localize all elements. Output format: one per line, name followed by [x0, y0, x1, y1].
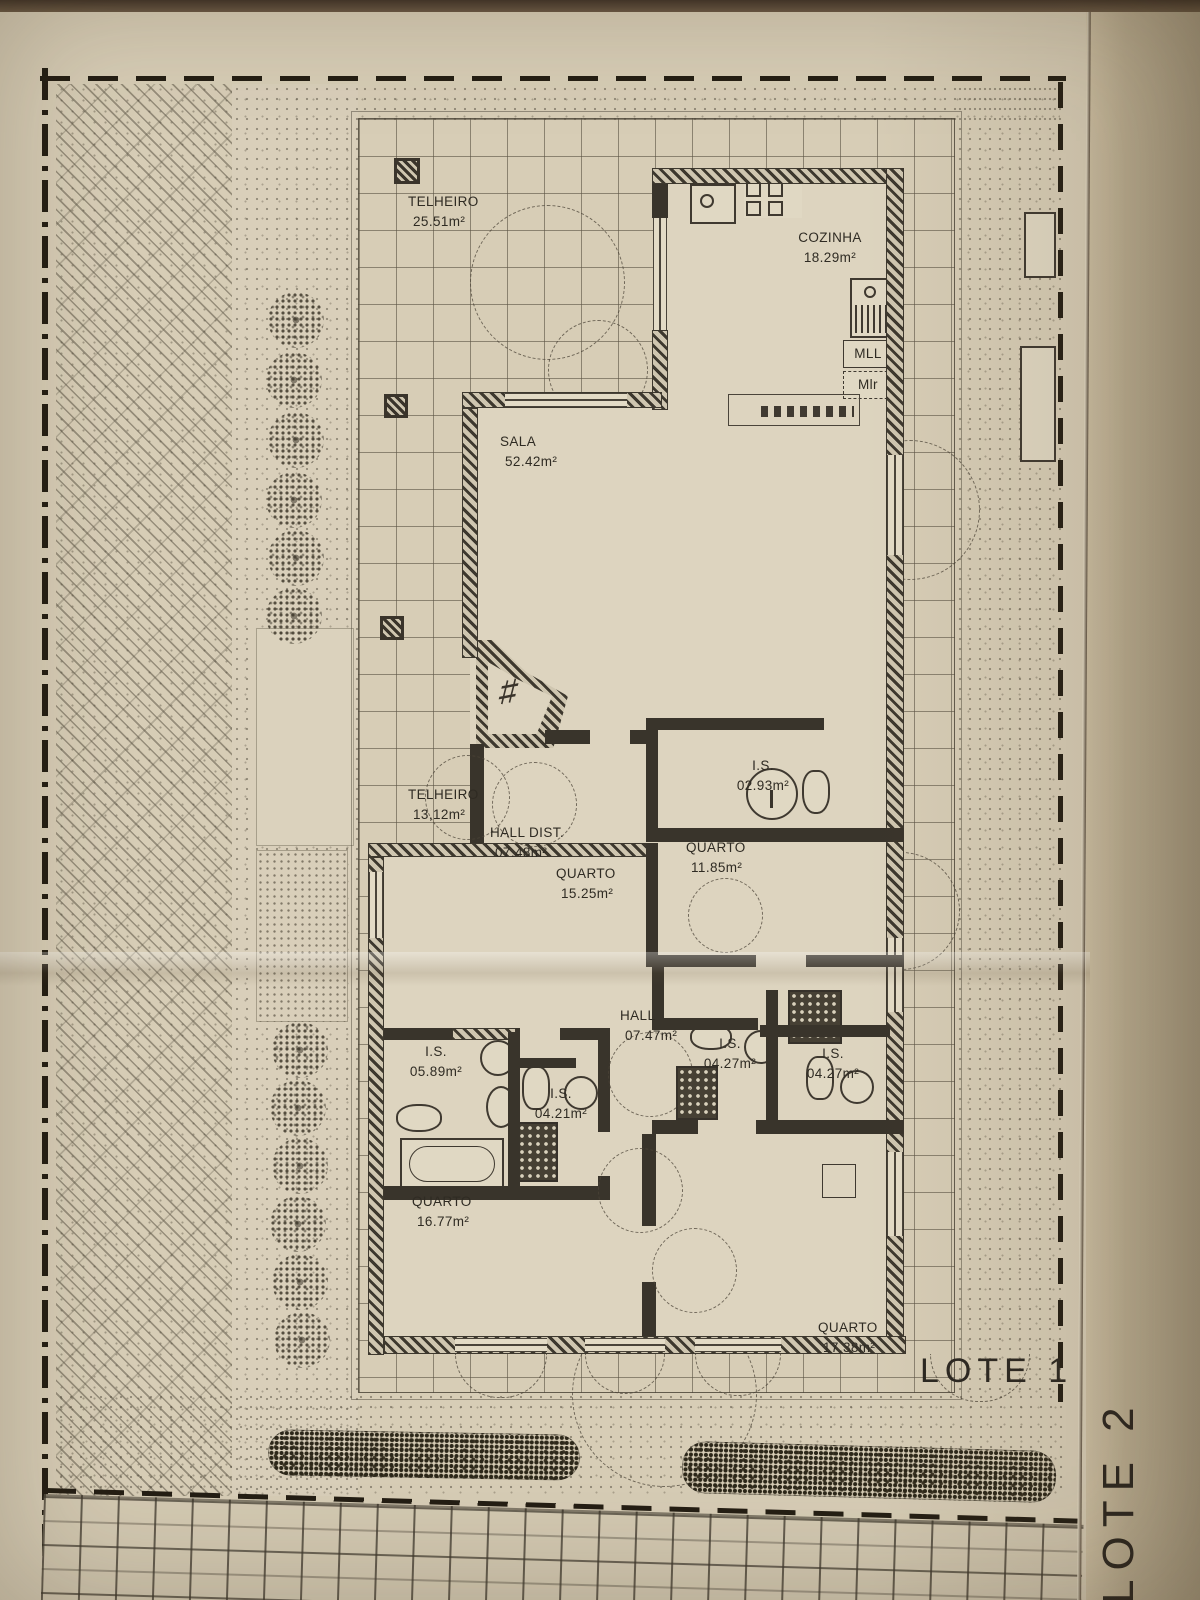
room-area: 15.25m²	[556, 884, 616, 904]
room-label-telheiro-2: TELHEIRO 13,12m²	[408, 785, 479, 826]
room-name: HALL DIST.	[490, 823, 564, 843]
room-name: I.S.	[698, 1034, 762, 1054]
room-name: I.S.	[404, 1042, 468, 1062]
kitchen-sink-icon	[700, 194, 714, 208]
hedge-icon	[268, 1429, 581, 1480]
property-boundary-right	[1058, 82, 1063, 1402]
room-label-is-0293: I.S. 02.93m²	[728, 756, 798, 797]
column-post-icon	[394, 158, 420, 184]
planter-icon	[1024, 212, 1056, 278]
wall-segment	[652, 184, 668, 218]
room-area: 18.29m²	[788, 248, 872, 268]
tree-icon	[268, 412, 324, 468]
stove-burner	[768, 201, 783, 216]
room-area: 07.48m²	[490, 843, 564, 863]
lot-label-lote1: LOTE 1	[920, 1352, 1073, 1391]
room-label-cozinha: COZINHA 18.29m²	[788, 228, 872, 269]
room-name: QUARTO	[412, 1192, 472, 1212]
tree-icon	[272, 1022, 328, 1078]
room-area: 52.42m²	[500, 452, 557, 472]
room-name: TELHEIRO	[408, 785, 479, 805]
photo-top-edge	[0, 0, 1200, 12]
tree-icon	[274, 1312, 330, 1368]
lote1-text: LOTE 1	[920, 1352, 1073, 1390]
planter-icon	[1020, 346, 1056, 462]
mlr-text: Mlr	[858, 377, 878, 392]
hedge-icon	[681, 1441, 1056, 1503]
room-name: HALL	[620, 1006, 677, 1026]
room-name: COZINHA	[788, 228, 872, 248]
room-name: I.S.	[800, 1044, 866, 1064]
mll-text: MLL	[854, 346, 881, 361]
room-name: TELHEIRO	[408, 192, 479, 212]
tree-icon	[272, 1254, 328, 1310]
room-area: 17.38m²	[818, 1338, 878, 1358]
room-label-quarto-1738: QUARTO 17.38m²	[818, 1318, 878, 1359]
paper-crease	[0, 952, 1090, 986]
room-area: 04.21m²	[528, 1104, 594, 1124]
counter-tiles	[758, 406, 854, 417]
wall-segment	[462, 408, 478, 658]
street-paving	[40, 1494, 1084, 1600]
tree-icon	[272, 1138, 328, 1194]
window	[505, 393, 627, 407]
room-area: 05.89m²	[404, 1062, 468, 1082]
site-plan-photo: MLL Mlr ♯	[0, 0, 1200, 1600]
property-boundary-top	[40, 76, 1066, 81]
garden-stipple-right	[955, 84, 1063, 1394]
room-label-quarto-1185: QUARTO 11.85m²	[686, 838, 746, 879]
room-area: 04.27m²	[800, 1064, 866, 1084]
wall-segment	[508, 1032, 520, 1188]
room-name: SALA	[500, 432, 557, 452]
wall-segment	[646, 828, 904, 842]
room-label-is-0427-left: I.S. 04.27m²	[698, 1034, 762, 1075]
column-post-icon	[384, 394, 408, 418]
laundry-sink-grill	[855, 305, 887, 333]
room-label-is-0421: I.S. 04.21m²	[528, 1084, 594, 1125]
column-post-icon	[380, 616, 404, 640]
room-label-hall: HALL 07.47m²	[620, 1006, 677, 1047]
room-label-telheiro-1: TELHEIRO 25.51m²	[408, 192, 479, 233]
window	[887, 455, 903, 555]
room-area: 11.85m²	[686, 858, 746, 878]
bathtub-basin	[409, 1146, 495, 1182]
lot-label-lote2: LOTE 2	[1094, 1378, 1144, 1600]
room-area: 02.93m²	[728, 776, 798, 796]
garden-plain-patch	[256, 628, 354, 846]
window	[887, 1152, 903, 1236]
stove-burner	[746, 182, 761, 197]
room-label-hall-dist: HALL DIST. 07.48m²	[490, 823, 564, 864]
stove-burner	[746, 201, 761, 216]
lote2-text: LOTE 2	[1094, 1398, 1143, 1600]
wall-segment	[642, 1282, 656, 1340]
tree-icon	[270, 1080, 326, 1136]
wall-segment	[652, 1120, 698, 1134]
room-name: QUARTO	[818, 1318, 878, 1338]
window	[455, 1338, 547, 1352]
room-area: 04.27m²	[698, 1054, 762, 1074]
tree-icon	[270, 1196, 326, 1252]
wall-segment	[646, 843, 658, 955]
room-area: 07.47m²	[620, 1026, 677, 1046]
wall-segment	[760, 1025, 890, 1037]
property-boundary-left	[42, 68, 48, 1565]
room-label-quarto-1677: QUARTO 16.77m²	[412, 1192, 472, 1233]
room-area: 25.51m²	[408, 212, 479, 232]
wall-segment	[652, 168, 904, 184]
toilet-icon	[802, 770, 830, 814]
toilet-icon	[396, 1104, 442, 1132]
wardrobe-box	[822, 1164, 856, 1198]
window	[653, 218, 667, 330]
room-name: I.S.	[728, 756, 798, 776]
door-swing-arc	[652, 1228, 737, 1313]
wall-segment	[545, 730, 590, 744]
room-label-quarto-1525: QUARTO 15.25m²	[556, 864, 616, 905]
wall-segment	[646, 718, 824, 730]
window	[585, 1338, 665, 1352]
wall-segment	[756, 1120, 904, 1134]
room-label-sala: SALA 52.42m²	[500, 432, 557, 473]
tree-icon	[266, 588, 322, 644]
tree-icon	[268, 292, 324, 348]
paper-fold-strip	[1086, 0, 1200, 1600]
laundry-sink-knob	[864, 286, 876, 298]
shower-icon	[516, 1122, 558, 1182]
wall-segment	[766, 990, 778, 1124]
door-swing-arc	[688, 878, 763, 953]
room-name: I.S.	[528, 1084, 594, 1104]
window	[695, 1338, 781, 1352]
tree-icon	[266, 352, 322, 408]
room-area: 16.77m²	[412, 1212, 472, 1232]
stove-burner	[768, 182, 783, 197]
room-name: QUARTO	[686, 838, 746, 858]
door-swing-arc	[598, 1148, 683, 1233]
tree-icon	[268, 530, 324, 586]
tree-icon	[266, 472, 322, 528]
room-label-is-0427-right: I.S. 04.27m²	[800, 1044, 866, 1085]
window	[369, 872, 383, 938]
wall-segment	[646, 718, 658, 830]
wall-segment	[452, 1028, 516, 1040]
garden-dotted-patch	[256, 850, 348, 1022]
room-label-is-0589: I.S. 05.89m²	[404, 1042, 468, 1083]
wall-segment	[516, 1058, 576, 1068]
room-name: QUARTO	[556, 864, 616, 884]
room-area: 13,12m²	[408, 805, 479, 825]
